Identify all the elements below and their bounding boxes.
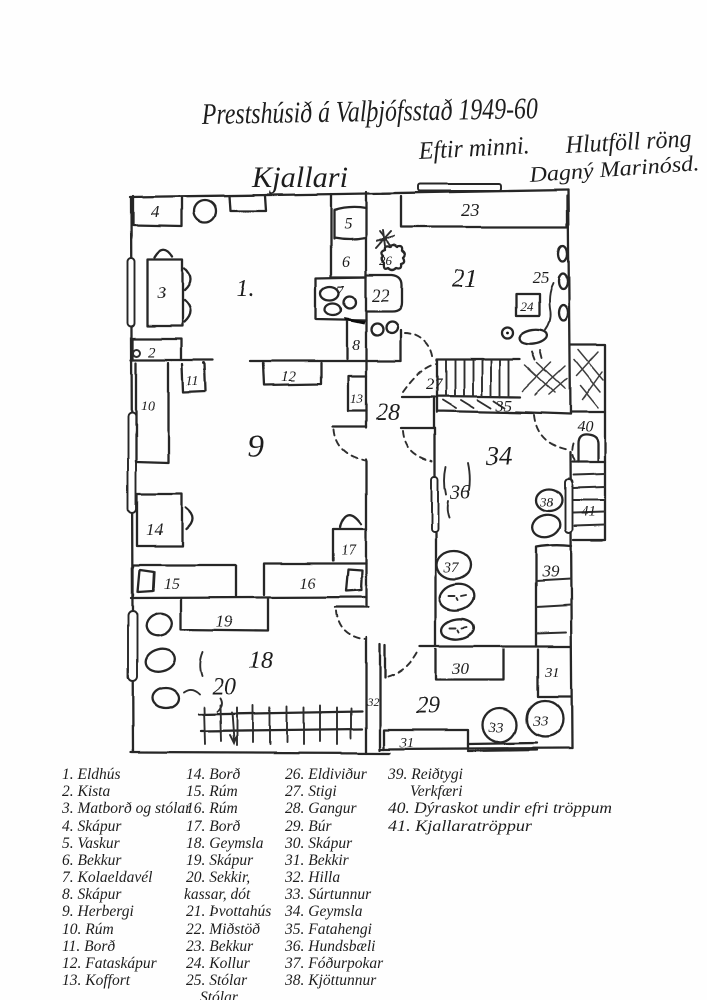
svg-text:31: 31 xyxy=(399,736,414,751)
svg-text:10: 10 xyxy=(141,399,155,414)
svg-text:17. Borð: 17. Borð xyxy=(186,818,241,835)
svg-text:Prestshúsið á Valþjófsstað 194: Prestshúsið á Valþjófsstað 1949-60 xyxy=(201,92,538,131)
svg-text:32: 32 xyxy=(366,695,379,709)
svg-text:26: 26 xyxy=(379,253,393,268)
svg-text:40. Dýraskot undir efri tröppu: 40. Dýraskot undir efri tröppum xyxy=(388,800,612,817)
svg-text:27: 27 xyxy=(426,376,443,393)
svg-text:34: 34 xyxy=(485,442,512,471)
svg-text:38: 38 xyxy=(539,494,554,509)
svg-text:34. Geymsla: 34. Geymsla xyxy=(284,903,363,920)
svg-text:31: 31 xyxy=(544,665,560,681)
svg-text:10. Rúm: 10. Rúm xyxy=(62,921,114,938)
svg-text:16. Rúm: 16. Rúm xyxy=(186,800,238,817)
svg-text:27. Stigi: 27. Stigi xyxy=(285,783,337,800)
svg-text:11: 11 xyxy=(186,374,199,389)
svg-text:37: 37 xyxy=(443,560,461,576)
svg-text:5: 5 xyxy=(344,216,352,233)
svg-text:21. Þvottahús: 21. Þvottahús xyxy=(186,903,271,920)
svg-text:2. Kista: 2. Kista xyxy=(62,783,110,800)
svg-text:25: 25 xyxy=(532,268,549,287)
svg-text:13. Koffort: 13. Koffort xyxy=(62,972,131,989)
svg-text:25. Stólar: 25. Stólar xyxy=(186,972,248,989)
svg-text:3: 3 xyxy=(156,283,166,302)
svg-text:1.: 1. xyxy=(236,276,254,302)
svg-text:13: 13 xyxy=(350,391,364,406)
svg-text:29. Búr: 29. Búr xyxy=(285,818,332,835)
svg-text:6: 6 xyxy=(342,254,350,271)
svg-text:15: 15 xyxy=(163,576,179,593)
svg-text:17: 17 xyxy=(341,542,358,558)
svg-text:41. Kjallaratröppur: 41. Kjallaratröppur xyxy=(388,818,533,835)
svg-text:24: 24 xyxy=(520,299,534,314)
svg-text:40: 40 xyxy=(577,419,593,436)
svg-text:11. Borð: 11. Borð xyxy=(62,938,115,955)
svg-text:28: 28 xyxy=(376,400,400,426)
svg-text:23. Bekkur: 23. Bekkur xyxy=(186,938,254,955)
svg-text:33. Súrtunnur: 33. Súrtunnur xyxy=(284,886,372,903)
svg-text:39. Reiðtygi: 39. Reiðtygi xyxy=(387,766,463,783)
svg-text:28. Gangur: 28. Gangur xyxy=(285,800,357,817)
svg-text:Dagný Marinósd.: Dagný Marinósd. xyxy=(528,150,700,187)
svg-text:3. Matborð og stólar: 3. Matborð og stólar xyxy=(61,800,192,817)
svg-text:30. Skápur: 30. Skápur xyxy=(284,835,353,852)
svg-text:16: 16 xyxy=(300,575,316,592)
svg-text:30: 30 xyxy=(451,659,470,678)
svg-text:33: 33 xyxy=(488,720,504,736)
svg-text:23: 23 xyxy=(461,200,479,220)
svg-text:8. Skápur: 8. Skápur xyxy=(62,886,122,903)
svg-text:33: 33 xyxy=(532,714,548,730)
svg-text:22: 22 xyxy=(372,285,390,305)
svg-text:22. Miðstöð: 22. Miðstöð xyxy=(186,921,260,938)
svg-text:Kjallari: Kjallari xyxy=(251,161,348,194)
svg-text:15. Rúm: 15. Rúm xyxy=(186,783,238,800)
svg-text:21: 21 xyxy=(452,264,478,293)
svg-text:5. Vaskur: 5. Vaskur xyxy=(62,835,121,852)
svg-text:35: 35 xyxy=(495,398,512,415)
svg-text:38. Kjöttunnur: 38. Kjöttunnur xyxy=(284,972,377,989)
svg-text:19. Skápur: 19. Skápur xyxy=(186,852,254,869)
svg-text:1. Eldhús: 1. Eldhús xyxy=(62,766,121,783)
svg-text:37. Fóðurpokar: 37. Fóðurpokar xyxy=(284,955,384,972)
svg-text:Stólar: Stólar xyxy=(200,989,239,1000)
svg-text:32. Hilla: 32. Hilla xyxy=(284,869,340,886)
svg-text:31. Bekkir: 31. Bekkir xyxy=(284,852,350,869)
svg-text:9. Herbergi: 9. Herbergi xyxy=(62,903,134,920)
svg-text:9: 9 xyxy=(248,427,264,463)
svg-text:7. Kolaeldavél: 7. Kolaeldavél xyxy=(62,869,152,886)
svg-text:18: 18 xyxy=(249,648,273,674)
svg-text:24. Kollur: 24. Kollur xyxy=(186,955,251,972)
svg-text:35. Fatahengi: 35. Fatahengi xyxy=(284,921,372,938)
svg-text:6. Bekkur: 6. Bekkur xyxy=(62,852,122,869)
svg-text:4: 4 xyxy=(151,202,160,221)
svg-text:20: 20 xyxy=(212,674,236,700)
svg-text:26. Eldiviður: 26. Eldiviður xyxy=(285,766,368,783)
svg-text:18. Geymsla: 18. Geymsla xyxy=(186,835,264,852)
svg-text:12: 12 xyxy=(281,369,297,385)
svg-text:36: 36 xyxy=(449,481,470,503)
svg-text:kassar, dót: kassar, dót xyxy=(184,886,251,903)
svg-text:7: 7 xyxy=(336,283,345,300)
svg-text:29: 29 xyxy=(416,693,440,719)
svg-text:20. Sekkir,: 20. Sekkir, xyxy=(186,869,250,886)
svg-text:Eftir minni.: Eftir minni. xyxy=(417,132,530,165)
svg-text:4. Skápur: 4. Skápur xyxy=(62,818,122,835)
svg-text:39: 39 xyxy=(541,562,560,581)
svg-text:36. Hundsbæli: 36. Hundsbæli xyxy=(284,938,375,955)
svg-text:19: 19 xyxy=(216,612,234,631)
svg-text:12. Fataskápur: 12. Fataskápur xyxy=(62,955,158,972)
svg-text:14: 14 xyxy=(146,520,164,539)
svg-text:2: 2 xyxy=(148,345,156,361)
svg-text:41: 41 xyxy=(581,504,596,520)
svg-text:8: 8 xyxy=(352,337,360,354)
svg-text:Verkfæri: Verkfæri xyxy=(410,783,463,800)
svg-text:14. Borð: 14. Borð xyxy=(186,766,241,783)
